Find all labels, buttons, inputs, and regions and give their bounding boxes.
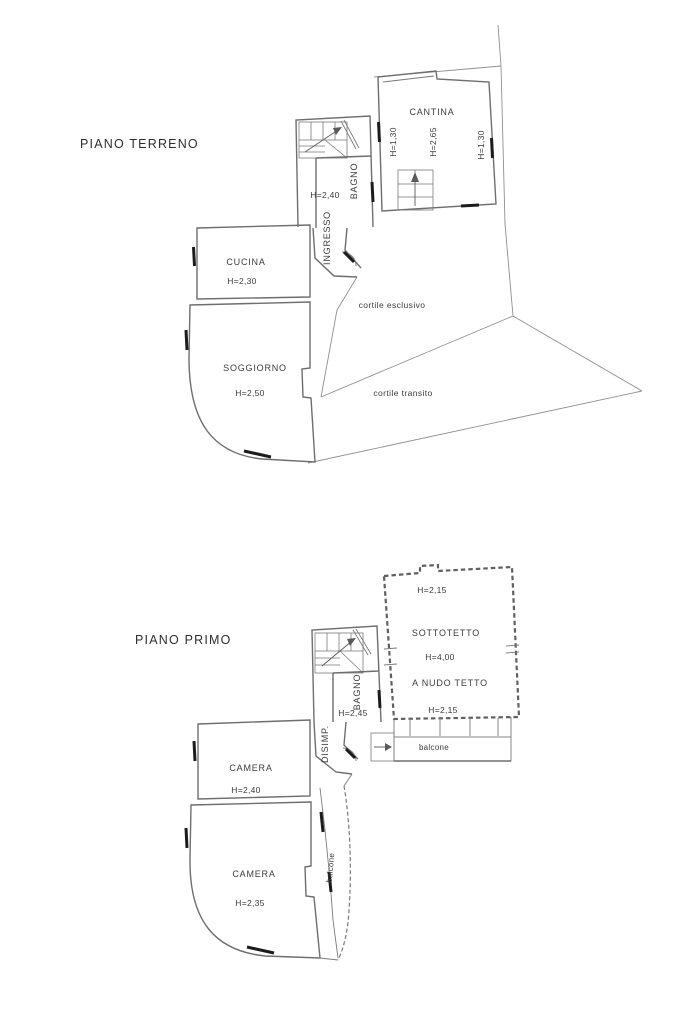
first-floor-title: PIANO PRIMO [135,633,232,647]
ground-stairs [299,122,347,158]
soggiorno-label: SOGGIORNO [223,363,287,373]
sottotetto-h-bottom: H=2,15 [428,705,457,715]
sottotetto-room: H=2,15 SOTTOTETTO H=4,00 A NUDO TETTO H=… [384,565,519,719]
cantina-h-center: H=2,65 [428,127,438,156]
sottotetto-label: SOTTOTETTO [412,628,480,638]
sottotetto-note: A NUDO TETTO [412,678,488,688]
bagno-ground-h: H=2,40 [310,190,339,200]
camera1-h: H=2,40 [231,785,260,795]
camera2-h: H=2,35 [235,898,264,908]
floor-plan-page: PIANO TERRENO CANTINA [0,0,683,1023]
balcone-side-label: balcone [325,852,337,883]
first-stair-bagno-block: BAGNO H=2,45 [312,626,381,722]
cortile-esclusivo-label: cortile esclusivo [359,300,426,310]
camera1-label: CAMERA [229,763,272,773]
balcone-side: balcone [320,774,352,960]
disimpegno-label: DISIMP. [320,725,330,763]
soggiorno-room: SOGGIORNO H=2,50 [186,302,315,462]
camera2-label: CAMERA [232,869,275,879]
cantina-h-left: H=1,30 [388,127,398,156]
ground-floor-title: PIANO TERRENO [80,137,199,151]
cortile-transito-label: cortile transito [373,388,432,398]
bagno-first-label: BAGNO [352,674,362,711]
ingresso-corridor: INGRESSO [313,211,361,277]
cantina-h-right: H=1,30 [476,130,486,159]
balcone-access-stair [371,733,394,761]
disimpegno-corridor: DISIMP. [314,722,358,774]
soggiorno-h: H=2,50 [235,388,264,398]
camera1-room: CAMERA H=2,40 [194,720,310,799]
camera2-room: CAMERA H=2,35 [186,802,320,958]
bagno-first-h: H=2,45 [338,708,367,718]
cucina-h: H=2,30 [227,276,256,286]
cantina-room: CANTINA H=1,30 H=2,65 H=1,30 [378,71,496,211]
first-floor-stairs [315,633,363,673]
ground-boundary-lines [308,25,642,463]
bagno-ground-label: BAGNO [349,163,359,200]
sottotetto-h-center: H=4,00 [425,652,454,662]
cucina-label: CUCINA [226,257,265,267]
cantina-stairs [398,170,433,210]
ground-floor-plan: PIANO TERRENO CANTINA [80,25,642,463]
ground-stair-bagno-block: BAGNO H=2,40 [296,116,373,228]
floor-plan-svg: PIANO TERRENO CANTINA [0,0,683,1023]
sottotetto-h-top: H=2,15 [417,585,446,595]
cucina-room: CUCINA H=2,30 [194,225,311,299]
balcone-front: balcone [371,717,511,761]
balcone-front-label: balcone [419,743,449,752]
first-floor-plan: PIANO PRIMO H=2,15 SOTTOTETTO H=4,00 A N… [135,565,519,960]
cantina-label: CANTINA [409,107,454,117]
ingresso-label: INGRESSO [322,211,332,265]
